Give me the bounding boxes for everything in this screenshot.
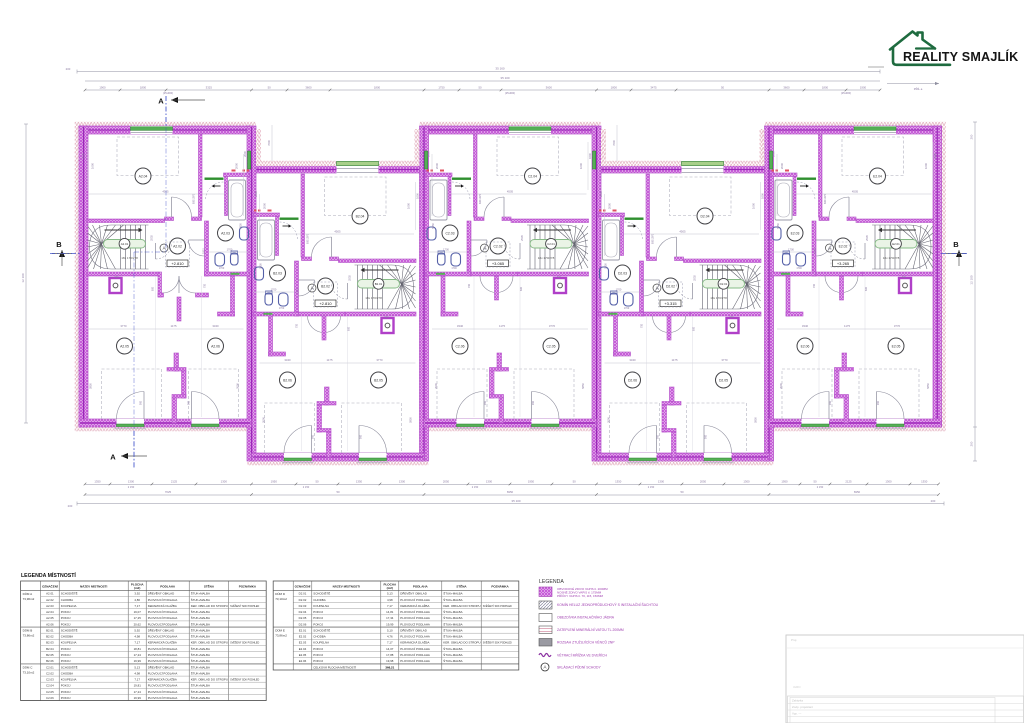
svg-text:18x 170/278: 18x 170/278: [365, 296, 382, 300]
svg-text:OZNAČENÍ: OZNAČENÍ: [42, 583, 58, 588]
svg-text:5850: 5850: [239, 223, 243, 229]
svg-text:7,17: 7,17: [134, 604, 140, 608]
svg-text:200: 200: [68, 504, 73, 508]
svg-text:SKLÁDACÍ PŮDNÍ SCHODY: SKLÁDACÍ PŮDNÍ SCHODY: [557, 665, 601, 670]
svg-text:ŠTUK+MALBA: ŠTUK+MALBA: [443, 591, 462, 596]
svg-text:C2.05: C2.05: [546, 345, 555, 349]
svg-text:DŘEVĚNÝ OBKLAD: DŘEVĚNÝ OBKLAD: [148, 591, 175, 596]
svg-text:ŠTUK+MALBA: ŠTUK+MALBA: [191, 609, 210, 614]
svg-text:OZNAČENÍ: OZNAČENÍ: [295, 583, 311, 588]
svg-text:ŠTUK+MALBA: ŠTUK+MALBA: [443, 652, 462, 657]
svg-text:A2.05: A2.05: [46, 616, 54, 620]
svg-text:18,81: 18,81: [134, 647, 142, 651]
svg-text:1900: 1900: [860, 85, 867, 89]
svg-text:3770: 3770: [120, 324, 127, 328]
svg-text:POKOJ: POKOJ: [61, 616, 71, 620]
svg-text:A2.05: A2.05: [120, 345, 129, 349]
svg-text:3600: 3600: [305, 85, 312, 89]
svg-text:A2.03: A2.03: [46, 604, 54, 608]
svg-text:1600: 1600: [588, 153, 592, 159]
svg-text:900: 900: [877, 400, 880, 405]
svg-text:C2.06: C2.06: [46, 696, 54, 700]
svg-text:6950: 6950: [507, 490, 514, 494]
svg-text:PLOVOUCÍ PODLAHA: PLOVOUCÍ PODLAHA: [400, 598, 430, 602]
svg-text:3325: 3325: [206, 85, 213, 89]
svg-text:50: 50: [680, 490, 684, 494]
svg-text:3600: 3600: [546, 85, 553, 89]
svg-text:DŘEVĚNÝ OBKLAD: DŘEVĚNÝ OBKLAD: [148, 628, 175, 633]
svg-text:5850: 5850: [581, 383, 585, 389]
svg-text:14,81: 14,81: [386, 610, 394, 614]
svg-text:D2.04: D2.04: [700, 215, 709, 219]
svg-text:1175: 1175: [671, 358, 677, 362]
svg-text:KOUPELNA: KOUPELNA: [61, 604, 77, 608]
svg-text:B2.03: B2.03: [273, 272, 282, 276]
svg-text:C2.06: C2.06: [455, 345, 464, 349]
svg-text:700: 700: [204, 283, 207, 288]
svg-text:700: 700: [641, 323, 644, 328]
svg-text:1350: 1350: [356, 479, 363, 483]
svg-text:OBEZDÍVKA INSTALAČNÍHO JÁDRA: OBEZDÍVKA INSTALAČNÍHO JÁDRA: [557, 615, 615, 620]
svg-text:POKOJ: POKOJ: [313, 659, 323, 663]
svg-text:1300: 1300: [486, 479, 493, 483]
svg-text:CHODBA: CHODBA: [313, 598, 325, 602]
svg-text:DŘEVĚNÝ OBKLAD: DŘEVĚNÝ OBKLAD: [400, 591, 427, 596]
svg-text:POKOJ: POKOJ: [313, 647, 323, 651]
svg-text:A2.02: A2.02: [46, 598, 54, 602]
svg-text:D2.01: D2.01: [299, 592, 307, 596]
svg-text:2000: 2000: [772, 151, 776, 157]
svg-text:5850: 5850: [409, 417, 413, 423]
svg-text:E2.05: E2.05: [892, 345, 901, 349]
svg-text:2000: 2000: [780, 162, 784, 169]
svg-text:KERAMICKÁ DLAŽBA: KERAMICKÁ DLAŽBA: [400, 640, 429, 645]
svg-text:2 150: 2 150: [128, 485, 135, 489]
svg-text:600: 600: [902, 276, 907, 279]
svg-text:DŮM C: DŮM C: [23, 664, 34, 669]
svg-text:A2.03: A2.03: [221, 232, 230, 236]
svg-text:1600: 1600: [579, 162, 583, 169]
svg-text:800: 800: [348, 326, 351, 331]
svg-text:1950: 1950: [528, 479, 535, 483]
svg-text:50: 50: [336, 490, 340, 494]
svg-text:PLOVOUCÍ PODLAHA: PLOVOUCÍ PODLAHA: [148, 635, 178, 639]
svg-text:1600: 1600: [761, 193, 765, 199]
svg-text:35 100: 35 100: [511, 499, 521, 503]
svg-text:B2.01: B2.01: [46, 629, 54, 633]
svg-text:1350: 1350: [94, 479, 101, 483]
svg-text:200: 200: [970, 134, 974, 139]
svg-text:800: 800: [693, 326, 696, 331]
svg-text:1600: 1600: [752, 202, 756, 209]
svg-text:ZATEPLENÍ MINERÁLNÍ VATOU TL.2: ZATEPLENÍ MINERÁLNÍ VATOU TL.200MM: [557, 628, 624, 632]
svg-text:D2.03: D2.03: [618, 272, 627, 276]
svg-text:1900: 1900: [99, 85, 106, 89]
svg-text:1175: 1175: [170, 324, 176, 328]
svg-text:1300: 1300: [221, 479, 228, 483]
svg-text:900: 900: [360, 434, 363, 439]
svg-text:ŠTUK+MALBA: ŠTUK+MALBA: [191, 634, 210, 639]
svg-text:ŠTUK+MALBA: ŠTUK+MALBA: [443, 621, 462, 626]
svg-text:2000: 2000: [434, 383, 438, 389]
svg-text:KOUPELNA: KOUPELNA: [61, 641, 77, 645]
svg-text:5850: 5850: [604, 263, 608, 269]
svg-text:A2.04: A2.04: [46, 610, 54, 614]
svg-text:E2.06: E2.06: [299, 659, 307, 663]
svg-text:C2.05: C2.05: [46, 690, 54, 694]
svg-text:B2.06: B2.06: [283, 379, 292, 383]
svg-text:2535: 2535: [348, 275, 352, 281]
svg-text:5,10: 5,10: [387, 629, 393, 633]
svg-text:(m2): (m2): [134, 586, 140, 590]
svg-text:B2.06: B2.06: [46, 659, 54, 663]
svg-text:A: A: [163, 246, 166, 251]
svg-text:KOUPELNA: KOUPELNA: [61, 678, 77, 682]
svg-text:PLOVOUCÍ PODLAHA: PLOVOUCÍ PODLAHA: [400, 622, 430, 626]
svg-text:2535: 2535: [693, 275, 697, 281]
svg-text:B2.01: B2.01: [375, 282, 383, 286]
svg-text:5,13: 5,13: [387, 592, 393, 596]
svg-text:4505: 4505: [679, 230, 686, 234]
svg-text:E2.02: E2.02: [299, 635, 307, 639]
svg-text:ŠTUK+MALBA: ŠTUK+MALBA: [443, 628, 462, 633]
svg-text:2 150: 2 150: [817, 485, 824, 489]
svg-text:2000: 2000: [427, 151, 431, 157]
svg-text:1700: 1700: [271, 288, 277, 292]
svg-text:1800: 1800: [374, 85, 381, 89]
svg-text:PLOVOUCÍ PODLAHA: PLOVOUCÍ PODLAHA: [148, 653, 178, 657]
svg-text:800/1970: 800/1970: [652, 233, 655, 244]
svg-text:C2.02: C2.02: [493, 245, 502, 249]
svg-text:PLOVOUCÍ PODLAHA: PLOVOUCÍ PODLAHA: [400, 659, 430, 663]
svg-text:3340: 3340: [284, 358, 291, 362]
svg-text:A2.02: A2.02: [173, 245, 182, 249]
svg-text:+3.265: +3.265: [837, 261, 850, 266]
svg-text:POKOJ: POKOJ: [61, 696, 71, 700]
svg-text:ŠTUK+MALBA: ŠTUK+MALBA: [191, 689, 210, 694]
svg-text:2000: 2000: [235, 162, 239, 169]
svg-text:4,98: 4,98: [387, 598, 393, 602]
svg-text:ŠTUK+MALBA: ŠTUK+MALBA: [443, 658, 462, 663]
svg-text:2 150: 2 150: [472, 485, 479, 489]
svg-text:73,96m2: 73,96m2: [23, 597, 35, 601]
svg-text:POKOJ: POKOJ: [61, 622, 71, 626]
svg-text:2125: 2125: [171, 479, 178, 483]
svg-text:4505: 4505: [852, 190, 859, 194]
svg-text:C2.04: C2.04: [46, 684, 54, 688]
svg-text:200: 200: [66, 67, 71, 71]
svg-text:C2.03: C2.03: [445, 232, 454, 236]
svg-text:7,17: 7,17: [134, 641, 140, 645]
svg-text:1600: 1600: [91, 162, 95, 169]
svg-text:14,07: 14,07: [386, 647, 394, 651]
svg-text:POKOJ: POKOJ: [313, 653, 323, 657]
svg-text:12 100: 12 100: [21, 273, 25, 283]
svg-text:900: 900: [705, 434, 708, 439]
svg-text:73,86m2: 73,86m2: [23, 634, 35, 638]
svg-text:PLOVOUCÍ PODLAHA: PLOVOUCÍ PODLAHA: [400, 610, 430, 614]
svg-text:900: 900: [140, 400, 143, 405]
svg-text:1750: 1750: [438, 85, 445, 89]
svg-text:5850: 5850: [89, 383, 93, 389]
svg-text:1600: 1600: [924, 162, 928, 169]
svg-text:CHODBA: CHODBA: [313, 635, 325, 639]
svg-text:(m2): (m2): [387, 586, 393, 590]
svg-text:B2.02: B2.02: [46, 635, 54, 639]
svg-text:KERAMICKÁ DLAŽBA: KERAMICKÁ DLAŽBA: [148, 640, 177, 645]
svg-text:ŠTUK+MALBA: ŠTUK+MALBA: [191, 628, 210, 633]
svg-text:B2.04: B2.04: [46, 647, 54, 651]
svg-text:1800: 1800: [611, 85, 618, 89]
svg-text:12 100: 12 100: [970, 275, 974, 285]
svg-text:KOMÍN HELUZ JEDNOPRŮDUCHOVÝ S: KOMÍN HELUZ JEDNOPRŮDUCHOVÝ S INSTALAČNÍ…: [557, 602, 659, 607]
svg-text:ŠTUK+MALBA: ŠTUK+MALBA: [191, 664, 210, 669]
svg-text:800: 800: [152, 286, 155, 291]
svg-text:KER. OBKLAD DO STROPU: KER. OBKLAD DO STROPU: [191, 678, 228, 682]
svg-text:19,81: 19,81: [134, 684, 142, 688]
svg-text:1950: 1950: [271, 479, 278, 483]
svg-text:SCHODIŠTĚ: SCHODIŠTĚ: [313, 628, 330, 633]
svg-text:50: 50: [268, 85, 272, 89]
svg-text:A: A: [158, 97, 164, 106]
svg-text:3770: 3770: [376, 358, 383, 362]
svg-text:50: 50: [573, 479, 577, 483]
svg-text:3340: 3340: [457, 324, 464, 328]
svg-text:2000: 2000: [263, 202, 267, 209]
svg-text:DŘEVĚNÝ OBKLAD: DŘEVĚNÝ OBKLAD: [148, 664, 175, 669]
svg-text:1600: 1600: [82, 153, 86, 159]
svg-text:CHODBA: CHODBA: [61, 598, 73, 602]
svg-text:SCHODIŠTĚ: SCHODIŠTĚ: [61, 628, 78, 633]
svg-text:PLOVOUCÍ PODLAHA: PLOVOUCÍ PODLAHA: [148, 690, 178, 694]
svg-text:2 150: 2 150: [303, 485, 310, 489]
svg-text:50: 50: [721, 85, 725, 89]
svg-text:ŠTUK+MALBA: ŠTUK+MALBA: [443, 634, 462, 639]
svg-text:E2.05: E2.05: [299, 653, 307, 657]
svg-text:19,99: 19,99: [134, 696, 142, 700]
svg-text:3770: 3770: [549, 324, 556, 328]
svg-text:POKOJ: POKOJ: [61, 659, 71, 663]
svg-text:(25x900): (25x900): [841, 91, 851, 95]
svg-text:KER. OBKLAD DO STROPU: KER. OBKLAD DO STROPU: [443, 641, 480, 645]
svg-text:4505: 4505: [507, 190, 514, 194]
svg-text:STĚNA: STĚNA: [456, 583, 467, 588]
svg-text:5850: 5850: [926, 383, 930, 389]
svg-text:D2.05: D2.05: [299, 616, 307, 620]
svg-text:3475: 3475: [650, 85, 657, 89]
svg-text:1700: 1700: [279, 307, 285, 310]
svg-text:366,21: 366,21: [385, 665, 394, 669]
svg-text:POKOJ: POKOJ: [61, 647, 71, 651]
svg-text:KER. OBKLAD DO STROPU: KER. OBKLAD DO STROPU: [191, 641, 228, 645]
svg-text:D2.06: D2.06: [299, 622, 307, 626]
svg-text:Zodp. projektant: Zodp. projektant: [792, 705, 813, 709]
svg-text:7,17: 7,17: [134, 678, 140, 682]
svg-text:2000: 2000: [262, 417, 266, 423]
svg-text:19,99: 19,99: [134, 659, 142, 663]
svg-text:17,25: 17,25: [134, 616, 142, 620]
svg-text:PLOVOUCÍ PODLAHA: PLOVOUCÍ PODLAHA: [400, 653, 430, 657]
svg-text:A2.04: A2.04: [139, 175, 148, 179]
svg-text:3xRD: 3xRD: [793, 685, 801, 689]
svg-text:KOUPELNA: KOUPELNA: [313, 641, 329, 645]
svg-text:2 150: 2 150: [648, 485, 655, 489]
svg-text:900: 900: [484, 400, 487, 405]
svg-text:2125: 2125: [845, 479, 852, 483]
svg-text:D2.05: D2.05: [719, 379, 728, 383]
svg-text:1800: 1800: [822, 85, 829, 89]
svg-text:2535: 2535: [865, 235, 869, 241]
svg-text:B2.05: B2.05: [374, 379, 383, 383]
svg-text:ŠTUK+MALBA: ŠTUK+MALBA: [191, 597, 210, 602]
svg-text:A2.01: A2.01: [46, 592, 54, 596]
svg-text:Proj.: Proj.: [791, 638, 797, 642]
svg-text:SVĚŠENÝ SDK PODHLED: SVĚŠENÝ SDK PODHLED: [230, 642, 259, 645]
svg-text:1175: 1175: [844, 324, 850, 328]
svg-text:1700: 1700: [443, 248, 449, 252]
svg-text:2000: 2000: [608, 202, 612, 209]
svg-text:POZNÁMKA: POZNÁMKA: [239, 583, 257, 588]
svg-text:ŠTUK+MALBA: ŠTUK+MALBA: [191, 615, 210, 620]
svg-text:SCHODIŠTĚ: SCHODIŠTĚ: [61, 664, 78, 669]
svg-text:1600: 1600: [933, 153, 937, 159]
svg-text:4,76: 4,76: [387, 635, 393, 639]
svg-text:D2.03: D2.03: [299, 604, 307, 608]
svg-text:LEGENDA MÍSTNOSTÍ: LEGENDA MÍSTNOSTÍ: [21, 571, 76, 579]
svg-text:PŘÍČKY VAPIS tl. 70, 115, 150M: PŘÍČKY VAPIS tl. 70, 115, 150MM: [557, 593, 604, 598]
svg-text:19,98: 19,98: [386, 659, 394, 663]
svg-text:900: 900: [532, 400, 535, 405]
svg-text:C2.04: C2.04: [528, 175, 537, 179]
svg-text:900: 900: [312, 434, 315, 439]
svg-text:PODLAHA: PODLAHA: [160, 584, 176, 588]
svg-text:KERAMICKÁ DLAŽBA: KERAMICKÁ DLAŽBA: [148, 603, 177, 608]
svg-text:600: 600: [730, 316, 735, 319]
svg-text:DŮM A: DŮM A: [23, 591, 33, 596]
svg-text:E2.01: E2.01: [892, 242, 900, 246]
svg-text:DŮM D: DŮM D: [275, 591, 286, 596]
svg-text:19,99: 19,99: [386, 622, 394, 626]
svg-text:1600: 1600: [416, 193, 420, 199]
svg-text:NÁZEV MÍSTNOSTI: NÁZEV MÍSTNOSTI: [80, 583, 108, 588]
svg-text:D2.04: D2.04: [299, 610, 307, 614]
svg-text:ŠTUK+MALBA: ŠTUK+MALBA: [191, 646, 210, 651]
svg-text:17,24: 17,24: [134, 690, 142, 694]
svg-text:50: 50: [315, 479, 319, 483]
svg-text:PLOVOUCÍ PODLAHA: PLOVOUCÍ PODLAHA: [400, 616, 430, 620]
svg-text:D2.01: D2.01: [720, 282, 728, 286]
svg-text:1815: 1815: [202, 248, 206, 254]
svg-text:SVĚŠENÝ SDK PODHLED: SVĚŠENÝ SDK PODHLED: [483, 642, 512, 645]
svg-text:POKOJ: POKOJ: [61, 684, 71, 688]
svg-text:POKOJ: POKOJ: [61, 690, 71, 694]
svg-text:C2.02: C2.02: [46, 671, 54, 675]
svg-text:POKOJ: POKOJ: [313, 616, 323, 620]
svg-text:1300: 1300: [885, 479, 892, 483]
svg-text:2050: 2050: [700, 479, 707, 483]
svg-text:17,34: 17,34: [386, 616, 394, 620]
svg-text:900: 900: [188, 400, 191, 405]
svg-text:PLOVOUCÍ PODLAHA: PLOVOUCÍ PODLAHA: [148, 616, 178, 620]
svg-text:900: 900: [657, 434, 660, 439]
svg-text:50: 50: [813, 479, 817, 483]
svg-text:1700: 1700: [788, 248, 794, 252]
svg-text:5850: 5850: [431, 223, 435, 229]
svg-text:17,24: 17,24: [134, 653, 142, 657]
svg-text:D2.02: D2.02: [299, 598, 307, 602]
svg-text:PLOVOUCÍ PODLAHA: PLOVOUCÍ PODLAHA: [148, 659, 178, 663]
svg-text:900: 900: [829, 400, 832, 405]
svg-text:KERAMICKÁ DLAŽBA: KERAMICKÁ DLAŽBA: [148, 677, 177, 682]
svg-text:PODLAHA: PODLAHA: [413, 584, 429, 588]
svg-text:3340: 3340: [212, 324, 219, 328]
svg-text:35 100: 35 100: [500, 76, 510, 80]
svg-text:LEGENDA: LEGENDA: [539, 579, 564, 585]
svg-text:7600: 7600: [267, 140, 271, 146]
svg-text:ŠTUK+MALBA: ŠTUK+MALBA: [191, 652, 210, 657]
svg-text:1300: 1300: [399, 479, 406, 483]
svg-text:ŠTUK+MALBA: ŠTUK+MALBA: [191, 621, 210, 626]
svg-text:PLOVOUCÍ PODLAHA: PLOVOUCÍ PODLAHA: [148, 622, 178, 626]
svg-text:19,07: 19,07: [134, 610, 142, 614]
svg-text:73,86m2: 73,86m2: [275, 634, 287, 638]
svg-text:5,92: 5,92: [134, 629, 140, 633]
svg-text:2000: 2000: [435, 162, 439, 169]
svg-text:A: A: [544, 665, 547, 670]
svg-text:17,88: 17,88: [386, 653, 394, 657]
svg-text:NÁZEV MÍSTNOSTI: NÁZEV MÍSTNOSTI: [333, 583, 361, 588]
svg-text:200: 200: [970, 441, 974, 446]
svg-text:200: 200: [931, 499, 936, 503]
svg-text:50: 50: [478, 85, 482, 89]
svg-text:600: 600: [557, 276, 562, 279]
svg-text:DŮM E: DŮM E: [275, 628, 285, 633]
svg-text:VĚTRACÍ MŘÍŽKA VE DVEŘÍCH: VĚTRACÍ MŘÍŽKA VE DVEŘÍCH: [557, 653, 607, 658]
svg-text:3340: 3340: [802, 324, 809, 328]
svg-text:5850: 5850: [259, 263, 263, 269]
svg-text:73,10m2: 73,10m2: [275, 597, 287, 601]
svg-text:CHODBA: CHODBA: [61, 635, 73, 639]
svg-text:2000: 2000: [779, 383, 783, 389]
svg-text:2000: 2000: [607, 417, 611, 423]
svg-text:1700: 1700: [219, 267, 225, 270]
svg-text:A: A: [110, 453, 116, 462]
svg-text:+3.065: +3.065: [492, 261, 505, 266]
svg-text:1600: 1600: [407, 202, 411, 209]
svg-text:1175: 1175: [499, 324, 505, 328]
svg-text:ŠTUK+MALBA: ŠTUK+MALBA: [191, 658, 210, 663]
svg-text:PLOVOUCÍ PODLAHA: PLOVOUCÍ PODLAHA: [148, 684, 178, 688]
svg-text:18x 170/278: 18x 170/278: [538, 256, 555, 260]
svg-text:35 160: 35 160: [495, 67, 505, 71]
svg-text:+2.810: +2.810: [171, 261, 184, 266]
svg-text:700: 700: [468, 283, 471, 288]
svg-text:20,62: 20,62: [134, 622, 142, 626]
svg-text:6950: 6950: [854, 490, 861, 494]
svg-text:E2.02: E2.02: [839, 245, 848, 249]
svg-text:800/1970: 800/1970: [824, 193, 827, 204]
svg-text:3600: 3600: [783, 85, 790, 89]
svg-text:E2.03: E2.03: [791, 232, 800, 236]
svg-text:7600: 7600: [612, 140, 616, 146]
svg-text:1350: 1350: [615, 479, 622, 483]
svg-text:ŠTUK+MALBA: ŠTUK+MALBA: [443, 615, 462, 620]
svg-text:600: 600: [115, 276, 120, 279]
svg-text:B: B: [953, 240, 959, 249]
svg-text:5,13: 5,13: [134, 665, 140, 669]
svg-text:(25x900): (25x900): [505, 91, 515, 95]
svg-text:ROZSAH ZTUŽUJÍCÍCH VĚNCŮ 2NP: ROZSAH ZTUŽUJÍCÍCH VĚNCŮ 2NP: [557, 640, 615, 645]
